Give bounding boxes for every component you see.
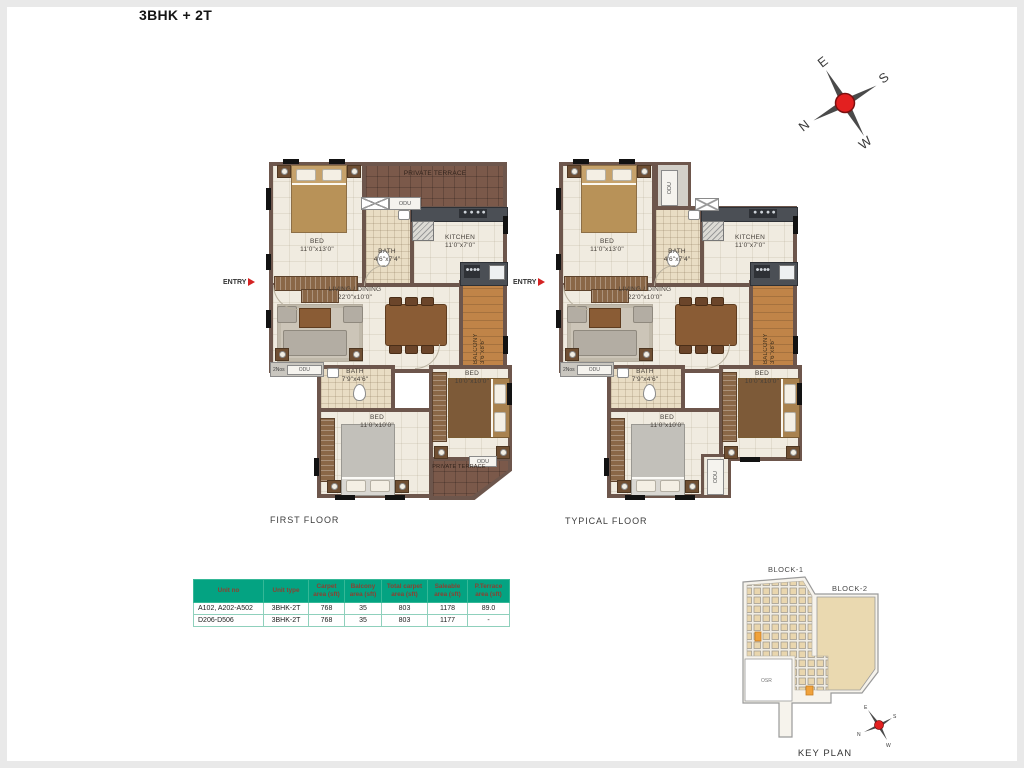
osr-label: OSR <box>761 678 772 684</box>
room-dims: 4'6"x7'4" <box>651 256 703 264</box>
cell-balcony-area: 35 <box>345 615 382 627</box>
room-dims: 11'0"x7'0" <box>705 242 795 250</box>
wall-window-segment <box>283 159 299 164</box>
cell-unit-type: 3BHK-2T <box>264 615 309 627</box>
nightstand-icon <box>786 446 800 459</box>
cell-saleable-area: 1177 <box>428 615 468 627</box>
nightstand-icon <box>327 480 341 493</box>
armchair-icon <box>343 306 363 323</box>
room-label: BATH 4'6"x7'4" <box>651 248 703 264</box>
room-label: BALCONY 3'6"x8'6" <box>473 294 486 364</box>
cell-saleable-area: 1178 <box>428 603 468 615</box>
room-label: BED 10'0"x10'0" <box>435 370 509 386</box>
louver-hatch-icon <box>361 197 389 210</box>
nightstand-icon <box>434 446 448 459</box>
room-name: BED <box>725 370 799 378</box>
col-header: Total carpet area (sft) <box>382 580 428 603</box>
side-table-icon <box>565 348 579 361</box>
chair-icon <box>711 297 724 306</box>
room-label: BATH 4'6"x7'4" <box>361 248 413 264</box>
room-label: BED 11'0"x13'0" <box>273 238 361 254</box>
wall-window-segment <box>619 159 635 164</box>
cell-unit-no: D206-D506 <box>194 615 264 627</box>
toilet-icon <box>353 384 366 401</box>
nightstand-icon <box>347 165 361 178</box>
compass-rose-icon: E S N W <box>795 55 900 155</box>
cell-carpet-area: 768 <box>309 603 345 615</box>
washbasin-icon <box>398 210 410 220</box>
wall-window-segment <box>793 336 798 354</box>
room-name: BED <box>563 238 651 246</box>
wall-window-segment <box>385 495 405 500</box>
stove-icon <box>459 209 487 218</box>
odu-label: ODU <box>577 365 612 375</box>
wall-window-segment <box>556 310 561 328</box>
hob-icon <box>464 265 480 278</box>
sofa-icon <box>573 330 637 356</box>
cell-carpet-area: 768 <box>309 615 345 627</box>
wall-window-segment <box>314 458 319 476</box>
floorplan-typical-floor: ENTRY <box>555 158 805 500</box>
sink-icon <box>489 265 505 280</box>
bed-icon <box>448 378 510 438</box>
side-table-icon <box>639 348 653 361</box>
room-name: LIVING / DINING <box>583 286 707 294</box>
wall-window-segment <box>266 188 271 210</box>
armchair-icon <box>633 306 653 323</box>
compass-south-label: S <box>893 714 897 720</box>
chair-icon <box>389 345 402 354</box>
dining-table-icon <box>675 304 737 346</box>
dining-table-icon <box>385 304 447 346</box>
chair-icon <box>679 345 692 354</box>
wall-window-segment <box>335 495 355 500</box>
wardrobe-icon <box>320 418 335 482</box>
bed-icon <box>631 424 685 496</box>
wall-window-segment <box>556 188 561 210</box>
room-label: BED 11'0"x10'0" <box>625 414 709 430</box>
mini-compass-icon: E S N W <box>857 705 897 749</box>
room-dims: 10'0"x10'0" <box>725 378 799 386</box>
cell-terrace-area: 89.0 <box>468 603 510 615</box>
nightstand-icon <box>395 480 409 493</box>
brochure-page: 3BHK + 2T E S N W ENTRY <box>0 0 1024 768</box>
room-label: BED 10'0"x10'0" <box>725 370 799 386</box>
wall-window-segment <box>266 254 271 270</box>
table-row: D206-D506 3BHK-2T 768 35 803 1177 - <box>194 615 510 627</box>
compass-east-label: E <box>815 55 831 70</box>
room-dims: 3'6"x8'6" <box>770 294 776 364</box>
room-label: BATH 7'9"x4'6" <box>323 368 387 384</box>
room-name: BED <box>273 238 361 246</box>
room-name: LIVING / DINING <box>293 286 417 294</box>
chair-icon <box>421 297 434 306</box>
entry-arrow-icon <box>248 278 255 286</box>
odu-unit: ODU <box>389 197 421 210</box>
room-dims: 3'6"x8'6" <box>480 294 486 364</box>
wall-window-segment <box>329 159 345 164</box>
nightstand-icon <box>496 446 510 459</box>
typical-floor-caption: TYPICAL FLOOR <box>565 516 647 526</box>
nightstand-icon <box>637 165 651 178</box>
room-dims: 11'0"x13'0" <box>273 246 361 254</box>
room-name: BALCONY <box>473 294 479 364</box>
odu-label: ODU <box>399 201 411 207</box>
odu-unit: ODU <box>707 459 724 495</box>
room-dims: 11'0"x10'0" <box>335 422 419 430</box>
entry-label: ENTRY <box>513 279 536 286</box>
room-label: PRIVATE TERRACE <box>431 464 487 471</box>
wall-window-segment <box>503 216 508 234</box>
table-row: A102, A202-A502 3BHK-2T 768 35 803 1178 … <box>194 603 510 615</box>
sink-icon <box>779 265 795 280</box>
cell-balcony-area: 35 <box>345 603 382 615</box>
room-dims: 11'0"x7'0" <box>415 242 505 250</box>
highlighted-unit <box>806 686 813 695</box>
room-label: PRIVATE TERRACE <box>373 170 497 178</box>
nightstand-icon <box>567 165 581 178</box>
key-plan-map: OSR BLOCK-1 BLOCK-2 E S N W <box>735 560 915 760</box>
room-label: LIVING / DINING 22'0"x10'0" <box>293 286 417 302</box>
block-1-label: BLOCK-1 <box>768 565 804 574</box>
cell-terrace-area: - <box>468 615 510 627</box>
compass-west-label: W <box>856 133 875 153</box>
first-floor-caption: FIRST FLOOR <box>270 515 339 525</box>
compass-south-label: S <box>876 69 892 86</box>
wall-window-segment <box>625 495 645 500</box>
room-name: BATH <box>361 248 413 256</box>
room-name: KITCHEN <box>415 234 505 242</box>
compass-east-label: E <box>864 705 868 711</box>
room-dims: 22'0"x10'0" <box>583 294 707 302</box>
table-header-row: Unit no Unit type Carpet area (sft) Balc… <box>194 580 510 603</box>
col-header: Unit no <box>194 580 264 603</box>
nightstand-icon <box>617 480 631 493</box>
wall-window-segment <box>797 383 802 405</box>
room-name: KITCHEN <box>705 234 795 242</box>
room-dims: 7'9"x4'6" <box>323 376 387 384</box>
odu-unit: 2Nos ODU <box>270 362 324 377</box>
wardrobe-icon <box>610 418 625 482</box>
cell-total-carpet: 803 <box>382 615 428 627</box>
bed-icon <box>341 424 395 496</box>
sofa-icon <box>283 330 347 356</box>
highlighted-unit <box>755 632 761 641</box>
nightstand-icon <box>685 480 699 493</box>
entry-marker: ENTRY <box>513 278 545 286</box>
wall-window-segment <box>675 495 695 500</box>
wall-window-segment <box>740 457 760 462</box>
room-name: BED <box>625 414 709 422</box>
compass-north-label: N <box>796 117 813 135</box>
room-dims: 11'0"x13'0" <box>563 246 651 254</box>
louver-hatch-icon <box>695 198 719 211</box>
compass-north-label: N <box>857 732 861 738</box>
wall-window-segment <box>556 254 561 270</box>
room-label: BED 11'0"x10'0" <box>335 414 419 430</box>
bed-icon <box>291 165 347 233</box>
wall-window-segment <box>573 159 589 164</box>
wall-window-segment <box>507 383 512 405</box>
odu-count-label: 2Nos <box>271 367 287 373</box>
col-header: Balcony area (sft) <box>345 580 382 603</box>
side-table-icon <box>275 348 289 361</box>
odu-label: ODU <box>667 182 673 194</box>
col-header: Unit type <box>264 580 309 603</box>
room-label: KITCHEN 11'0"x7'0" <box>415 234 505 250</box>
wall-window-segment <box>793 216 798 234</box>
room-name: BALCONY <box>763 294 769 364</box>
wall-window-segment <box>503 336 508 354</box>
wall-window-segment <box>604 458 609 476</box>
toilet-icon <box>643 384 656 401</box>
room-label: KITCHEN 11'0"x7'0" <box>705 234 795 250</box>
stove-icon <box>749 209 777 218</box>
key-plan-caption: KEY PLAN <box>735 748 915 759</box>
odu-label: ODU <box>713 471 719 483</box>
room-dims: 7'9"x4'6" <box>613 376 677 384</box>
room-dims: 4'6"x7'4" <box>361 256 413 264</box>
wall-window-segment <box>266 310 271 328</box>
room-name: BED <box>335 414 419 422</box>
block-2-label: BLOCK-2 <box>832 584 868 593</box>
odu-label: ODU <box>287 365 322 375</box>
entry-marker: ENTRY <box>223 278 255 286</box>
room-label: BALCONY 3'6"x8'6" <box>763 294 776 364</box>
odu-unit: 2Nos ODU <box>560 362 614 377</box>
room-name: BATH <box>323 368 387 376</box>
room-label: BATH 7'9"x4'6" <box>613 368 677 384</box>
cell-unit-type: 3BHK-2T <box>264 603 309 615</box>
room-name: BATH <box>613 368 677 376</box>
odu-unit: ODU <box>661 170 678 206</box>
cell-unit-no: A102, A202-A502 <box>194 603 264 615</box>
page-title: 3BHK + 2T <box>139 7 212 23</box>
coffee-table-icon <box>299 308 331 328</box>
side-table-icon <box>349 348 363 361</box>
floorplan-first-floor: ENTRY <box>265 158 515 500</box>
entry-arrow-icon <box>538 278 545 286</box>
room-name: BED <box>435 370 509 378</box>
nightstand-icon <box>724 446 738 459</box>
room-label: LIVING / DINING 22'0"x10'0" <box>583 286 707 302</box>
entry-label: ENTRY <box>223 279 246 286</box>
room-name: BATH <box>651 248 703 256</box>
room-dims: 22'0"x10'0" <box>293 294 417 302</box>
odu-count-label: 2Nos <box>561 367 577 373</box>
coffee-table-icon <box>589 308 621 328</box>
room-name: PRIVATE TERRACE <box>373 170 497 178</box>
col-header: P.Terrace area (sft) <box>468 580 510 603</box>
bed-icon <box>581 165 637 233</box>
room-dims: 11'0"x10'0" <box>625 422 709 430</box>
col-header: Saleable area (sft) <box>428 580 468 603</box>
room-dims: 10'0"x10'0" <box>435 378 509 386</box>
unit-area-table: Unit no Unit type Carpet area (sft) Balc… <box>193 579 510 627</box>
room-name: PRIVATE TERRACE <box>431 464 487 471</box>
col-header: Carpet area (sft) <box>309 580 345 603</box>
room-label: BED 11'0"x13'0" <box>563 238 651 254</box>
nightstand-icon <box>277 165 291 178</box>
bed-icon <box>738 378 800 438</box>
hob-icon <box>754 265 770 278</box>
washbasin-icon <box>688 210 700 220</box>
cell-total-carpet: 803 <box>382 603 428 615</box>
